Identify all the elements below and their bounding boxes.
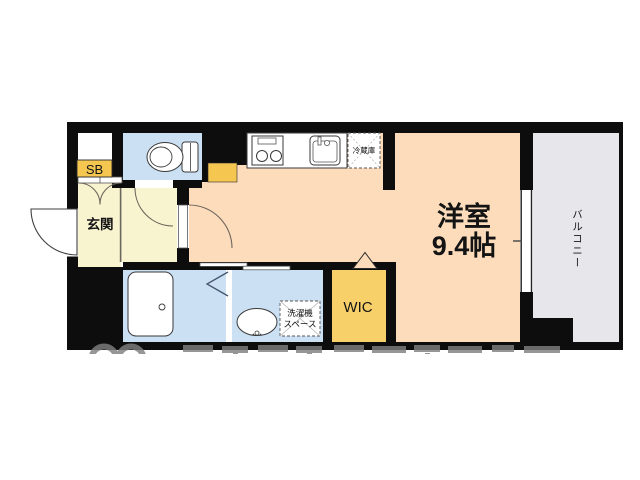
washer-space-label-1: 洗濯機 (287, 308, 313, 318)
wall-top (67, 122, 623, 133)
watermark-circle (119, 347, 144, 372)
wall-mass-bottom-left (67, 267, 123, 348)
bathtub-icon (128, 272, 173, 336)
floor-plan-page: 冷蔵庫 洗濯機 スペース 洋室 9.4帖 玄関 SB WIC バルコニー (0, 0, 640, 480)
wall-window-top (520, 133, 533, 190)
wall-right (619, 122, 623, 350)
watermark-circle (92, 347, 117, 372)
wic-label: WIC (343, 299, 372, 316)
wall-toilet-bottom-left (123, 180, 135, 188)
wall-toilet-bottom-right (173, 180, 202, 188)
main-room-label: 洋室 (437, 201, 491, 232)
floor-plan: 冷蔵庫 洗濯機 スペース 洋室 9.4帖 玄関 SB WIC バルコニー (0, 0, 640, 480)
front-door-icon (31, 209, 78, 257)
wall-washroom-wic (323, 262, 332, 342)
washer-space-icon: 洗濯機 スペース (280, 301, 320, 336)
entrance-label: 玄関 (87, 216, 114, 232)
wall-room-stub (383, 122, 395, 190)
entrance-step-line (120, 188, 122, 262)
wall-wic-right (386, 262, 396, 342)
kitchen-storage-box (208, 163, 237, 182)
kitchen-counter-icon (247, 133, 347, 168)
room-hall (121, 188, 177, 262)
wall-kitchen-stub (202, 165, 208, 182)
toilet-icon (147, 142, 198, 172)
wall-hall-right-bottom (177, 248, 189, 262)
wall-balcony-block (523, 318, 573, 342)
bath-partition (226, 270, 232, 342)
toilet-door-opening (135, 180, 173, 188)
wall-hall-right-top (177, 188, 189, 205)
balcony-label: バルコニー (571, 209, 583, 269)
refrigerator-icon: 冷蔵庫 (348, 133, 380, 168)
refrigerator-label: 冷蔵庫 (353, 145, 376, 155)
washer-space-label-2: スペース (284, 319, 317, 329)
shoe-box-label: SB (86, 162, 103, 177)
wall-kitchen-block (202, 122, 247, 165)
main-room-size-label: 9.4帖 (432, 231, 497, 261)
vanity-sink-icon (237, 309, 277, 336)
